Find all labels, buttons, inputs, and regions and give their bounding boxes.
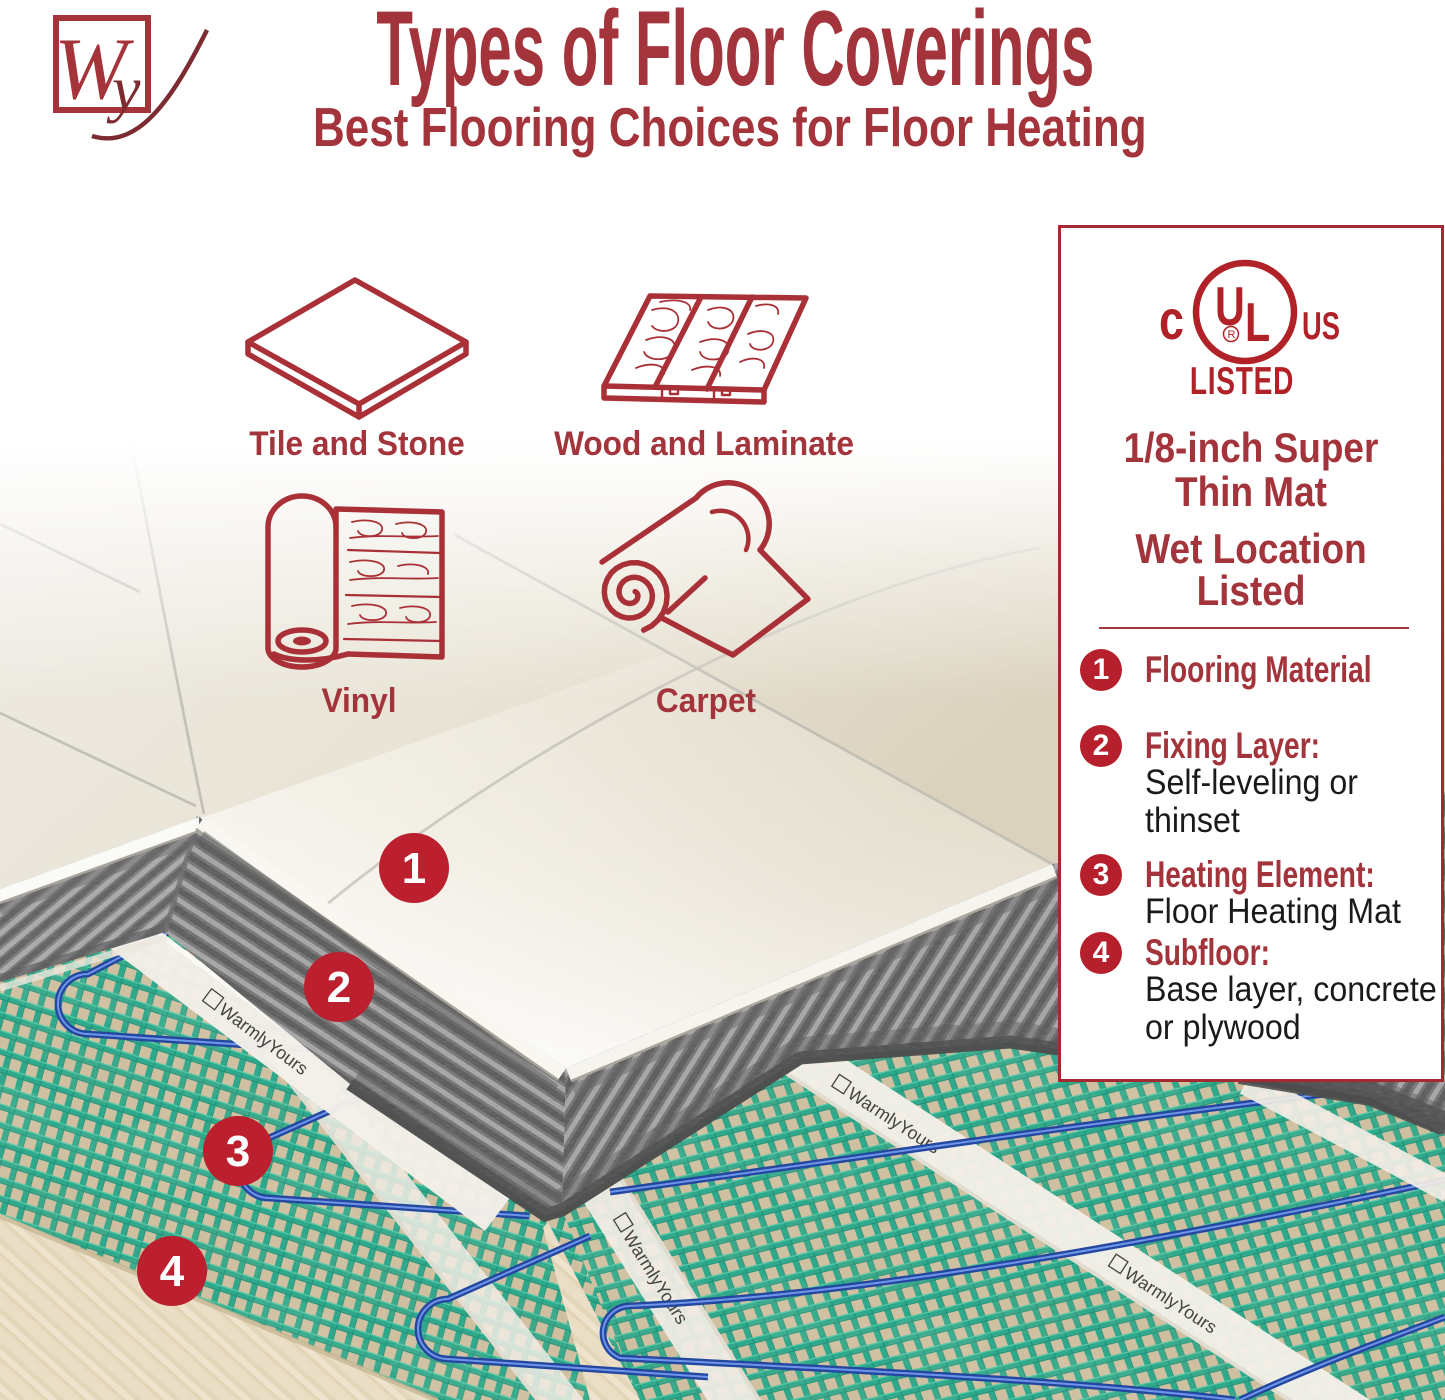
svg-text:US: US	[1302, 305, 1340, 348]
svg-text:1: 1	[402, 844, 426, 893]
svg-text:R: R	[1228, 329, 1236, 341]
svg-text:2: 2	[327, 963, 351, 1012]
svg-text:y: y	[106, 53, 141, 124]
svg-text:4: 4	[160, 1247, 185, 1296]
svg-text:3: 3	[226, 1127, 250, 1176]
svg-text:c: c	[1159, 288, 1184, 351]
svg-text:L: L	[1245, 292, 1270, 353]
